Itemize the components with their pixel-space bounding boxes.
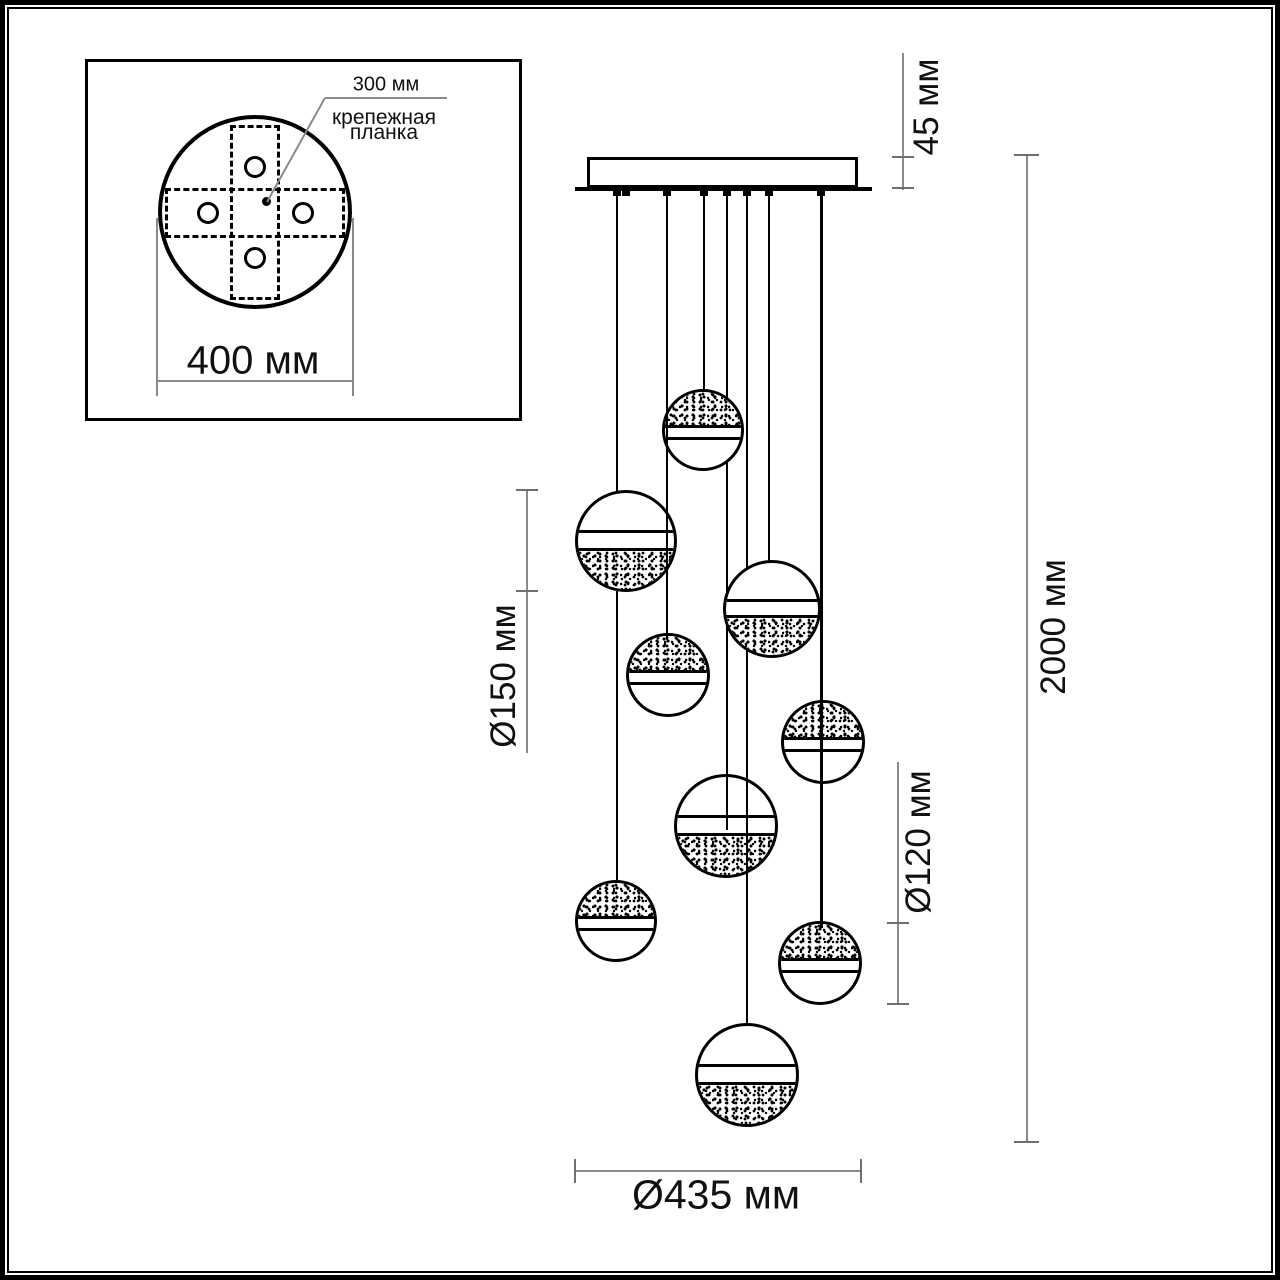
sphere-band-line [665,425,741,428]
sphere-band-line [578,928,654,931]
crystal-texture [698,1085,796,1124]
dim-435-tick-right [860,1159,862,1183]
dim-435-label: Ø435 мм [632,1172,800,1219]
sphere-band-line [665,437,741,440]
technical-drawing-page: 300 мм крепежная планка 400 мм 45 мм 200… [0,0,1280,1280]
dim-45-label: 45 мм [907,59,947,156]
cord-line-over [746,775,748,1024]
dim-45-tick-top [892,156,914,158]
sphere-band-line [578,916,654,919]
pendant-sphere [626,633,710,717]
crystal-texture [629,636,707,670]
dim-120-tick-bottom [887,1003,909,1005]
dim-150-tick-top [516,489,538,491]
cord-grip [743,189,751,196]
cord-line-over [666,190,668,640]
dim-150-label: Ø150 мм [484,604,524,747]
ceiling-canopy [587,157,858,188]
mount-hole-right [292,202,314,224]
pendant-sphere [662,389,744,471]
sphere-band-line [726,615,818,618]
crystal-texture [677,836,775,875]
cord-grip [622,189,630,196]
pendant-sphere [781,700,865,784]
leader-horizontal-line [325,97,447,99]
dim-400-ext-left [156,218,158,396]
pendant-sphere [575,880,657,962]
crystal-texture [665,392,741,425]
sphere-band-line [781,970,859,973]
cord-line [726,190,728,781]
cord-line-over [820,701,823,928]
mount-hole-top [244,156,266,178]
mount-hole-bottom [244,247,266,269]
sphere-band-line [726,599,818,602]
sphere-band-line [781,958,859,961]
dim-2000-tick-bottom [1014,1141,1039,1143]
cord-grip [765,189,773,196]
cord-line [820,190,823,707]
dim-120-label: Ø120 мм [899,770,939,913]
dim-120-tick-top [887,922,909,924]
sphere-band-line [629,682,707,685]
cord-line-over [726,775,728,830]
cord-grip [613,189,621,196]
bracket-caption: крепежная планка [332,110,436,140]
crystal-texture [726,618,818,655]
mount-hole-left [197,202,219,224]
cord-grip [817,189,825,196]
dim-400-label: 400 мм [187,339,320,384]
sphere-band-line [784,737,862,740]
sphere-band-line [698,1064,796,1067]
cord-line [768,190,770,566]
sphere-band-line [578,548,674,551]
crystal-texture [578,883,654,916]
sphere-band-line [784,749,862,752]
dim-2000-label: 2000 мм [1034,559,1074,695]
crystal-texture [781,924,859,958]
dim-45-line [902,53,904,190]
cord-grip [700,189,708,196]
dim-435-tick-left [574,1159,576,1183]
dim-150-tick-bottom [516,590,538,592]
sphere-band-line [698,1082,796,1085]
pendant-sphere [778,921,862,1005]
cord-line [703,190,705,395]
pendant-sphere [723,560,821,658]
dim-400-ext-right [352,218,354,396]
dim-2000-line [1026,155,1028,1143]
sphere-band-line [629,670,707,673]
pendant-sphere [575,490,677,592]
bracket-size-label: 300 мм [353,74,419,97]
sphere-band-line [677,833,775,836]
crystal-texture [784,703,862,737]
pendant-sphere [695,1023,799,1127]
sphere-band-line [578,530,674,533]
dim-2000-tick-top [1014,154,1039,156]
dim-150-line [526,490,528,753]
bracket-horizontal-dashed [165,188,345,238]
crystal-texture [578,551,674,589]
cord-grip [723,189,731,196]
dim-45-tick-bottom [892,187,914,189]
